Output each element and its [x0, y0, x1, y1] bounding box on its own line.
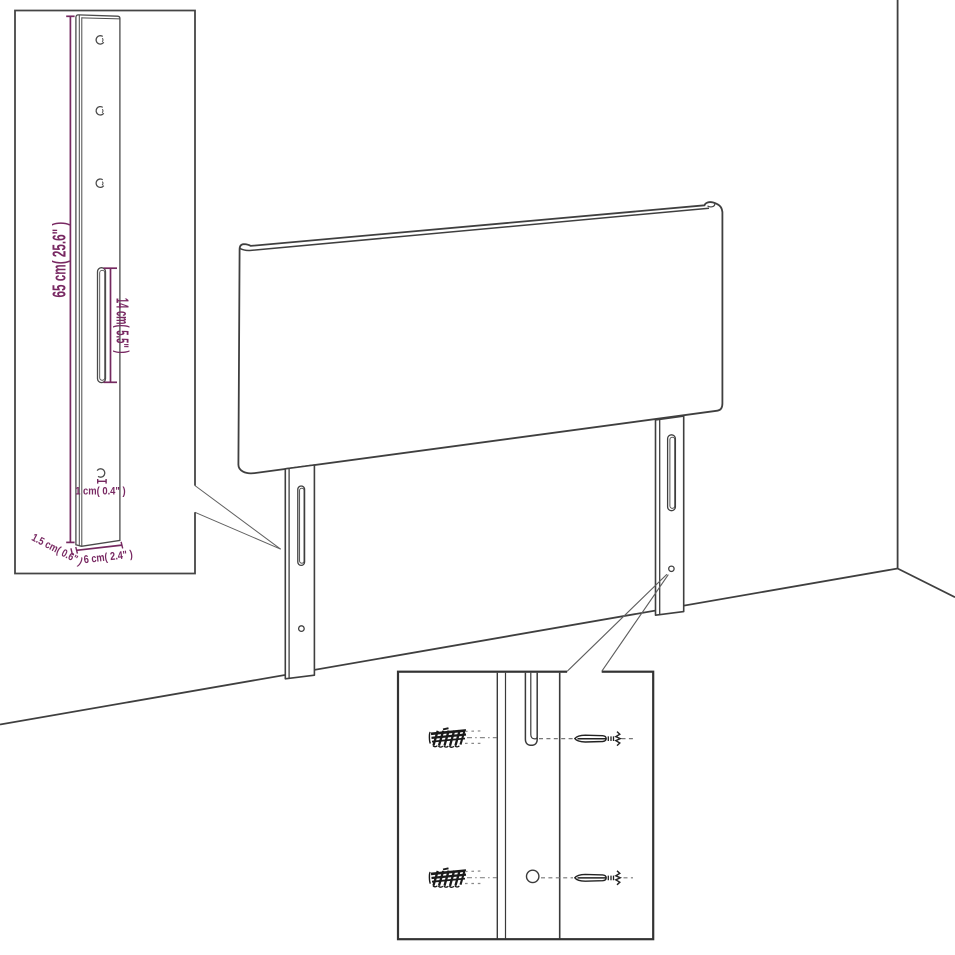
svg-text:14 cm( 5.5" ): 14 cm( 5.5" ): [112, 298, 132, 354]
svg-text:1 cm( 0.4" ): 1 cm( 0.4" ): [75, 486, 125, 498]
svg-text:65 cm( 25.6" ): 65 cm( 25.6" ): [50, 222, 70, 298]
svg-text:6 cm( 2.4" ): 6 cm( 2.4" ): [83, 549, 133, 567]
